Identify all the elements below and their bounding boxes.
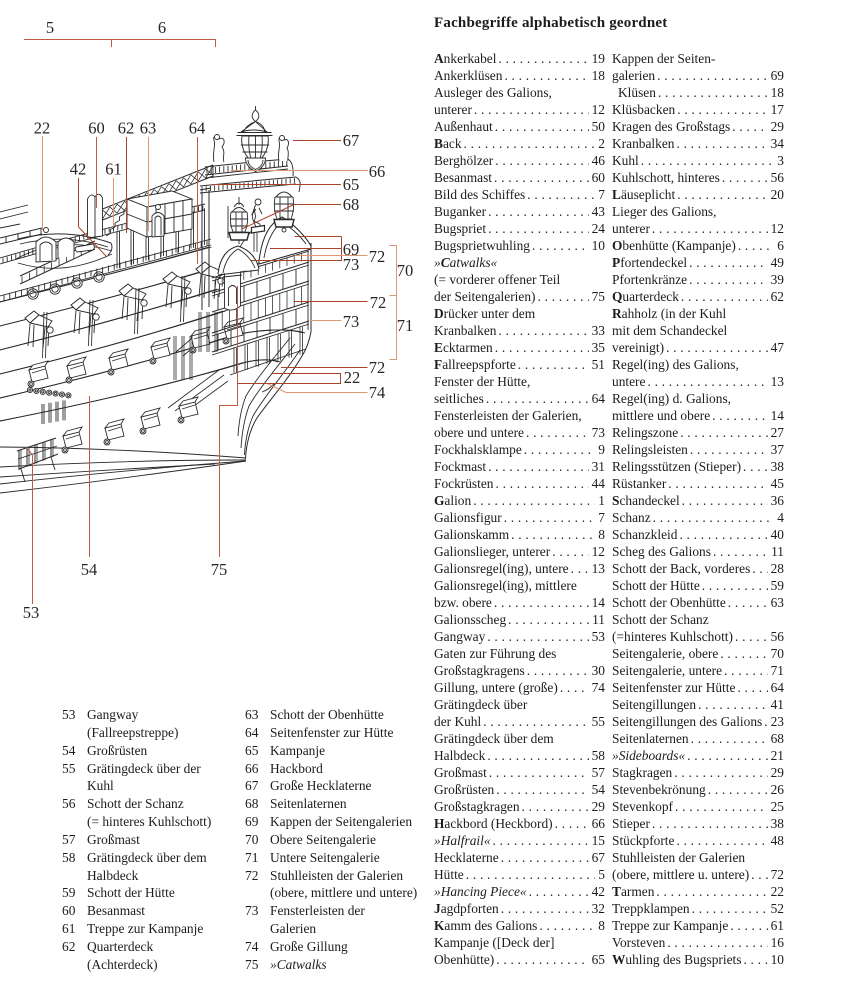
svg-text:62: 62 bbox=[118, 119, 135, 138]
svg-text:53: 53 bbox=[23, 603, 40, 622]
svg-text:60: 60 bbox=[88, 119, 105, 138]
svg-text:63: 63 bbox=[140, 119, 157, 138]
svg-text:6: 6 bbox=[158, 18, 166, 37]
svg-text:5: 5 bbox=[46, 18, 54, 37]
svg-text:72: 72 bbox=[369, 247, 386, 266]
svg-text:22: 22 bbox=[344, 368, 361, 387]
svg-text:68: 68 bbox=[343, 195, 360, 214]
svg-text:72: 72 bbox=[370, 293, 387, 312]
svg-text:64: 64 bbox=[189, 119, 206, 138]
svg-text:61: 61 bbox=[105, 160, 122, 179]
svg-text:65: 65 bbox=[343, 175, 360, 194]
svg-text:42: 42 bbox=[70, 160, 87, 179]
svg-text:75: 75 bbox=[211, 560, 228, 579]
svg-text:54: 54 bbox=[81, 560, 98, 579]
svg-text:72: 72 bbox=[369, 358, 386, 377]
svg-text:66: 66 bbox=[369, 162, 386, 181]
svg-text:67: 67 bbox=[343, 131, 360, 150]
svg-text:73: 73 bbox=[343, 312, 360, 331]
svg-text:71: 71 bbox=[397, 316, 414, 335]
svg-text:73: 73 bbox=[343, 255, 360, 274]
svg-text:70: 70 bbox=[397, 261, 414, 280]
svg-text:22: 22 bbox=[34, 119, 51, 138]
svg-text:74: 74 bbox=[369, 383, 386, 402]
